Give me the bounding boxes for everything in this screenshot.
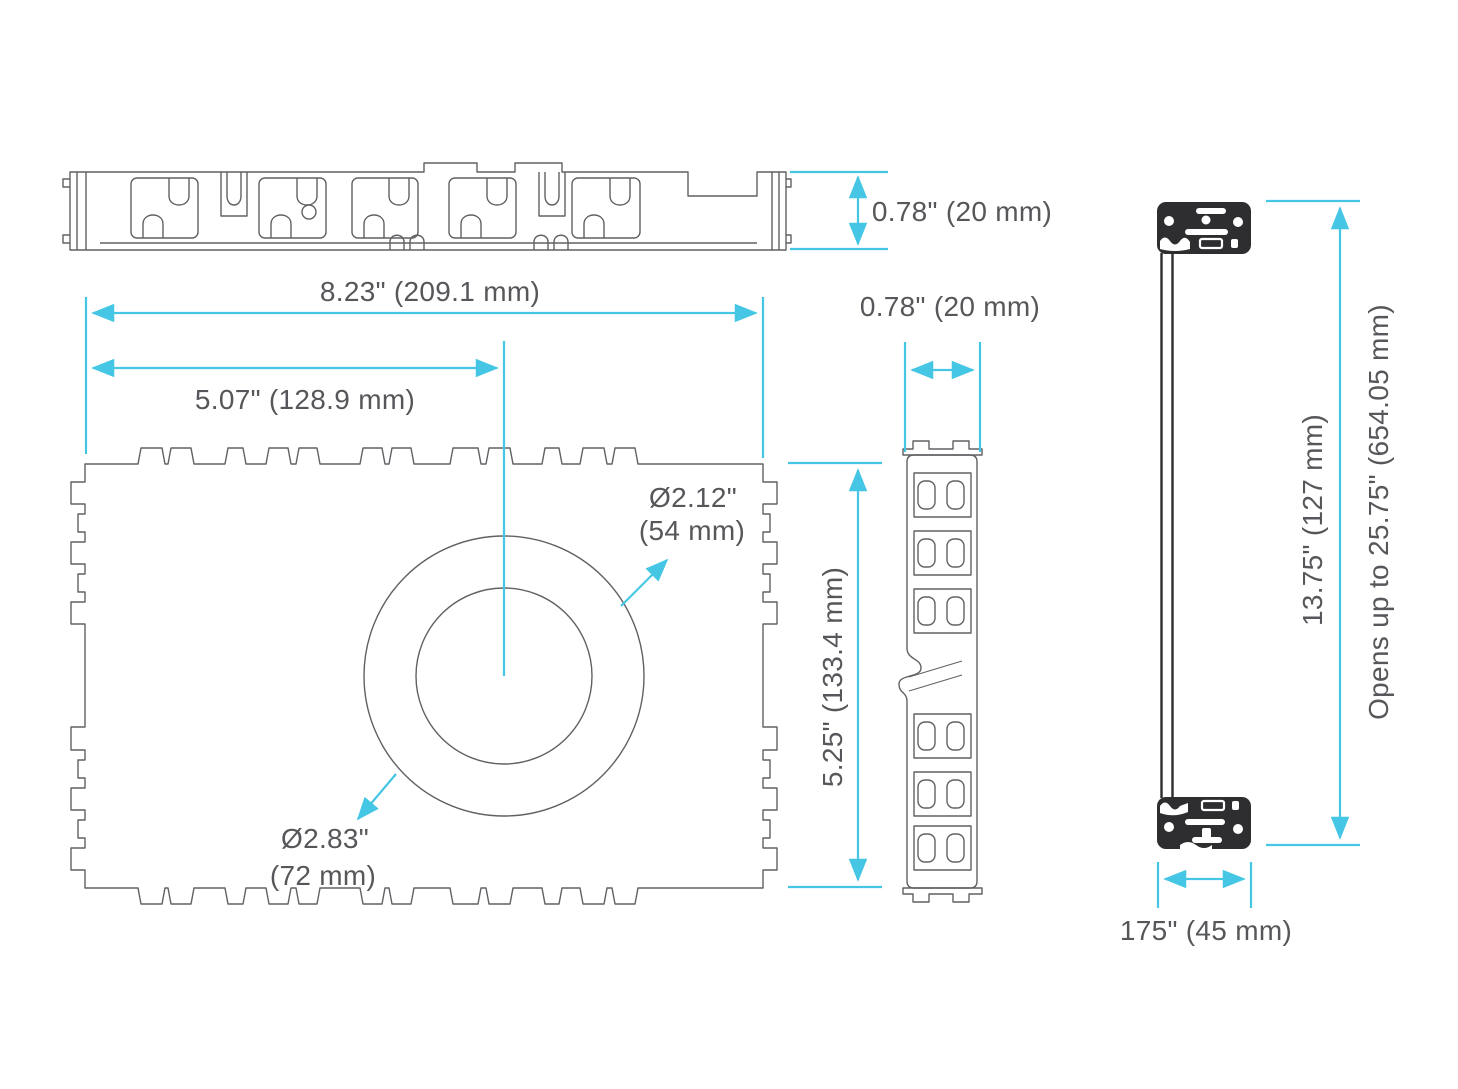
dim-top-view-height	[790, 172, 888, 249]
side-view-break-lines	[909, 661, 962, 691]
top-view-clip-panels	[131, 178, 640, 238]
open-side-view-drawing	[1157, 202, 1251, 849]
clamp-arm-bar	[1162, 253, 1173, 798]
clamp-top-block	[1157, 202, 1251, 254]
dim-overall-width	[86, 297, 763, 458]
dim-side-view-width	[905, 342, 980, 452]
clamp-bottom-block	[1157, 797, 1251, 849]
leader-inner-diameter	[621, 560, 667, 606]
drawing-canvas	[0, 0, 1458, 1089]
dim-center-offset	[93, 341, 504, 676]
top-view-outline	[86, 163, 772, 250]
side-view-top-cap	[903, 441, 982, 455]
dim-closed-height	[1266, 201, 1360, 845]
side-view-slots	[914, 473, 971, 870]
top-view-right-hook	[772, 172, 791, 250]
dim-front-height	[788, 463, 882, 887]
side-view-body	[907, 455, 977, 888]
top-view-left-hook	[63, 172, 86, 250]
top-view-drawing	[63, 163, 791, 250]
side-view-bottom-cap	[903, 888, 982, 902]
side-view-break-squiggle	[899, 648, 921, 702]
front-view-drawing	[71, 448, 777, 904]
leader-outer-diameter	[358, 774, 396, 819]
dimension-drawing-page: 0.78" (20 mm) 8.23" (209.1 mm) 5.07" (12…	[0, 0, 1458, 1089]
dim-open-depth	[1158, 862, 1251, 908]
front-view-outline	[71, 448, 777, 904]
side-view-drawing	[899, 441, 982, 902]
